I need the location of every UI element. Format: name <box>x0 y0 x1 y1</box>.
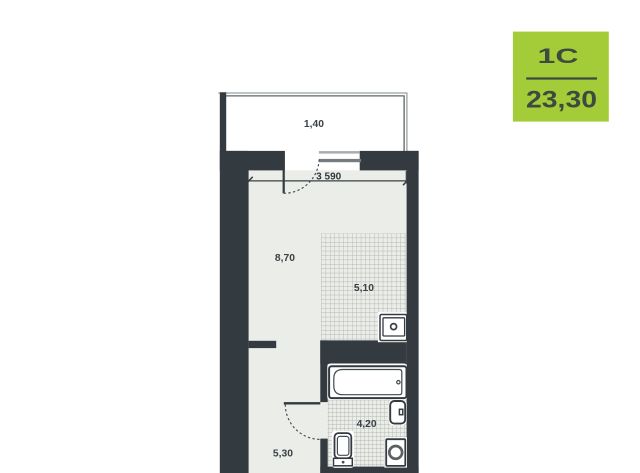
svg-text:8,70: 8,70 <box>275 253 295 264</box>
svg-text:3 590: 3 590 <box>316 171 341 182</box>
svg-text:23,30: 23,30 <box>526 87 597 114</box>
svg-text:5,10: 5,10 <box>354 283 374 294</box>
svg-text:4,20: 4,20 <box>357 419 377 430</box>
svg-text:5,30: 5,30 <box>273 449 293 460</box>
svg-text:1,40: 1,40 <box>304 119 324 130</box>
svg-text:1C: 1C <box>538 43 579 68</box>
